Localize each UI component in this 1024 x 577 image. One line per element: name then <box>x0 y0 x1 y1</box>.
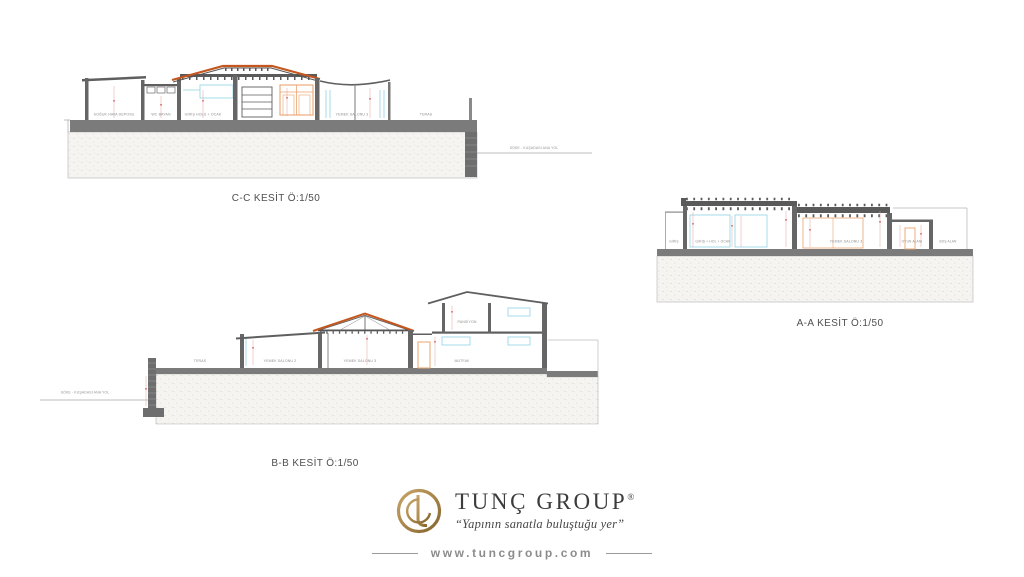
cc-room-giris-hol: GİRİŞ HOLÜ + OCAK <box>172 66 320 120</box>
aa-soil <box>657 256 973 302</box>
bb-room-yemek2: YEMEK SALONU 2 <box>236 332 325 369</box>
cc-room-wc-bayan: WC BAYAN <box>143 84 179 118</box>
section-title-aa: A-A KESİT Ö:1/50 <box>797 316 884 329</box>
cc-orange-door <box>280 85 313 115</box>
aa-room-giris: GİRİŞ <box>665 212 684 250</box>
bb-road-label: SÖKE - KUŞADASI ANA YOL <box>61 391 110 395</box>
website-rule-right <box>606 553 652 554</box>
section-bb-drawing: SÖKE - KUŞADASI ANA YOL TERAS YEMEK SALO… <box>35 285 615 480</box>
section-cc-drawing: SÖKE - KUŞADASI ANA YOL SOĞUK HAVA DEPOS… <box>40 48 600 213</box>
bb-room-mutfak: MUTFAK <box>408 330 530 368</box>
room-label-giris-hol-aa: GİRİŞ + HOL + OCAK <box>695 239 731 244</box>
room-label-teras-cc: TERAS <box>420 113 433 117</box>
section-aa-drawing: GİRİŞ GİRİŞ + HOL + OCAK YEMEK S <box>645 185 995 340</box>
brand-tagline: “Yapının sanatla buluştuğu yer” <box>455 517 634 532</box>
bb-slab-step <box>547 371 598 377</box>
aa-left-roof <box>681 198 797 209</box>
room-label-giris: GİRİŞ <box>669 239 678 244</box>
cc-retaining-wall <box>465 132 477 177</box>
room-label-oyun: OYUN ALANI <box>902 240 923 244</box>
website-rule-left <box>372 553 418 554</box>
cc-soil <box>68 132 477 178</box>
room-label-soguk-hava: SOĞUK HAVA DEPOSU <box>94 112 135 117</box>
cc-slab <box>70 120 477 132</box>
brand-name: TUNÇ GROUP® <box>455 490 634 514</box>
registered-mark: ® <box>627 492 634 502</box>
aa-right-roof <box>795 205 890 216</box>
cc-road-label: SÖKE - KUŞADASI ANA YOL <box>510 146 559 150</box>
brand-block: TUNÇ GROUP® “Yapının sanatla buluştuğu y… <box>392 484 634 538</box>
room-label-giris-hol: GİRİŞ HOLÜ + OCAK <box>185 112 222 117</box>
cc-cabinet <box>242 87 272 117</box>
website-url: www.tuncgroup.com <box>431 546 593 560</box>
cc-room-soguk-hava: SOĞUK HAVA DEPOSU <box>82 76 146 120</box>
room-label-pansiyon: PANSİYON <box>457 319 476 324</box>
bb-slab <box>156 368 547 374</box>
cc-slab-left-step <box>64 120 70 132</box>
aa-room-oyun: OYUN ALANI <box>888 220 933 250</box>
tunc-group-logo-icon <box>392 484 446 538</box>
room-label-yemek2: YEMEK SALONU 2 <box>264 359 297 363</box>
cc-room-yemek3: YEMEK SALONU 3 <box>315 78 391 120</box>
drawing-sheet: SÖKE - KUŞADASI ANA YOL SOĞUK HAVA DEPOS… <box>0 0 1024 577</box>
bb-pansiyon-roof <box>428 292 548 304</box>
section-title-cc: C-C KESİT Ö:1/50 <box>232 191 321 204</box>
room-label-wc-bayan: WC BAYAN <box>151 113 171 117</box>
room-label-bos: BOŞ ALAN <box>940 240 958 244</box>
room-label-mutfak: MUTFAK <box>454 359 470 363</box>
aa-room-giris-hol: GİRİŞ + HOL + OCAK <box>683 206 787 249</box>
section-title-bb: B-B KESİT Ö:1/50 <box>271 456 358 469</box>
bb-room-pansiyon: PANSİYON <box>428 292 548 368</box>
website-row: www.tuncgroup.com <box>0 546 1024 560</box>
bb-room-yemek3: YEMEK SALONU 3 <box>313 314 414 369</box>
bb-soil <box>156 374 598 424</box>
room-label-teras-bb: TERAS <box>194 359 207 363</box>
cc-terrace: TERAS <box>420 98 472 120</box>
room-label-yemek3-cc: YEMEK SALONU 3 <box>336 113 369 117</box>
room-label-yemek3-aa: YEMEK SALONU 3 <box>830 240 863 244</box>
room-label-yemek3-bb: YEMEK SALONU 3 <box>344 359 377 363</box>
aa-slab <box>657 249 973 256</box>
